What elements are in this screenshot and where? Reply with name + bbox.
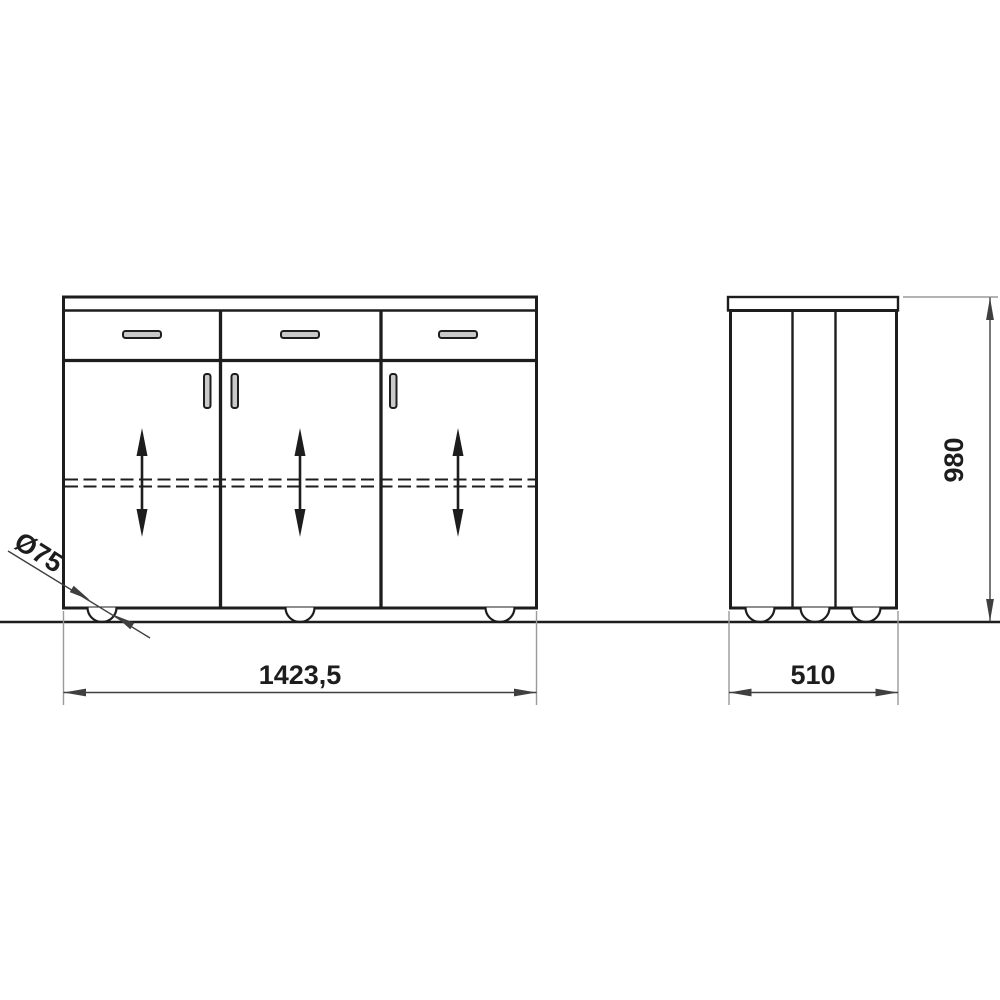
dimension-arrow-up-icon [986, 298, 994, 321]
shelf-adjust-arrow-right [453, 428, 464, 537]
dimension-arrow-left-icon [64, 689, 87, 697]
door-handle-left [204, 374, 211, 408]
drawer-handle-left [123, 331, 161, 338]
caster-wheel [746, 608, 775, 623]
side-countertop [728, 297, 898, 311]
arrow-up-icon [453, 428, 464, 456]
caster-wheel [486, 608, 515, 623]
arrow-up-icon [137, 428, 148, 456]
dimension-arrow-left-icon [729, 689, 752, 697]
door-handle-middle [232, 374, 239, 408]
width-dimension-label: 1423,5 [259, 660, 342, 690]
dimensions: 1423,5 510 980 Ø75 [8, 297, 998, 705]
door-handle-right [390, 374, 397, 408]
shelf-adjust-arrow-middle [295, 428, 306, 537]
arrow-down-icon [137, 509, 148, 537]
side-body-outline [731, 311, 897, 609]
shelf-adjust-arrow-left [137, 428, 148, 537]
caster-wheel [286, 608, 315, 623]
depth-dimension-label: 510 [790, 660, 835, 690]
dimension-arrow-right-icon [876, 689, 899, 697]
front-view [64, 297, 537, 622]
arrow-down-icon [453, 509, 464, 537]
technical-drawing-canvas: 1423,5 510 980 Ø75 [0, 0, 1000, 1000]
caster-wheel [801, 608, 830, 623]
caster-wheel [852, 608, 881, 623]
side-view [728, 297, 898, 622]
caster-diameter-label: Ø75 [9, 526, 68, 578]
dimension-arrow-right-icon [514, 689, 537, 697]
dimension-arrow-icon [70, 586, 90, 600]
width-dimension: 1423,5 [64, 660, 537, 696]
furniture-dimension-drawing: 1423,5 510 980 Ø75 [0, 0, 1000, 1000]
drawer-handle-middle [281, 331, 319, 338]
arrow-down-icon [295, 509, 306, 537]
height-dimension: 980 [939, 298, 994, 622]
drawer-handle-right [439, 331, 477, 338]
height-dimension-label: 980 [939, 437, 969, 482]
depth-dimension: 510 [729, 660, 898, 696]
dimension-arrow-down-icon [986, 599, 994, 622]
arrow-up-icon [295, 428, 306, 456]
